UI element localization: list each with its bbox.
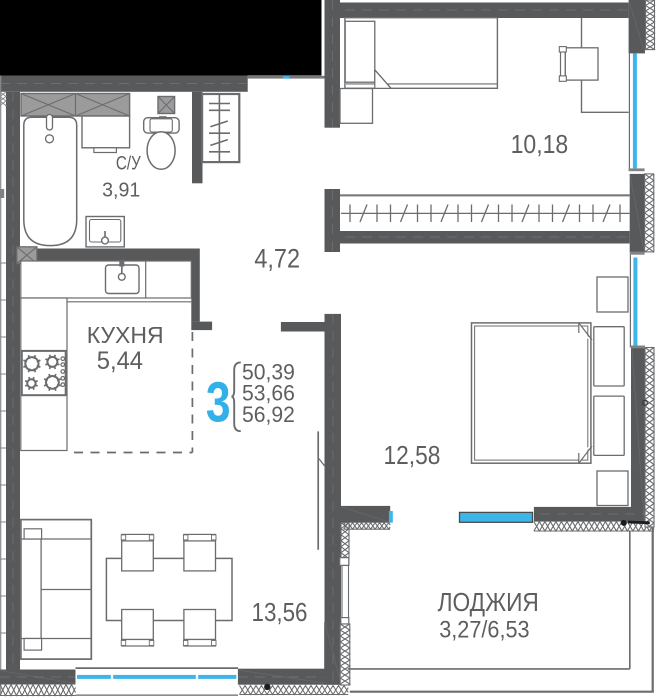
svg-text:13,56: 13,56: [252, 598, 308, 627]
svg-text:12,58: 12,58: [383, 442, 440, 471]
svg-text:КУХНЯ: КУХНЯ: [87, 322, 164, 348]
svg-text:56,92: 56,92: [242, 401, 295, 427]
svg-text:4,72: 4,72: [254, 244, 300, 274]
svg-text:3,91: 3,91: [102, 179, 140, 201]
svg-text:3,27/6,53: 3,27/6,53: [439, 615, 529, 643]
svg-text:ЛОДЖИЯ: ЛОДЖИЯ: [438, 589, 539, 618]
svg-text:5,44: 5,44: [97, 347, 143, 375]
svg-text:10,18: 10,18: [511, 131, 569, 160]
svg-text:С/У: С/У: [116, 152, 141, 174]
svg-text:3: 3: [206, 370, 231, 434]
